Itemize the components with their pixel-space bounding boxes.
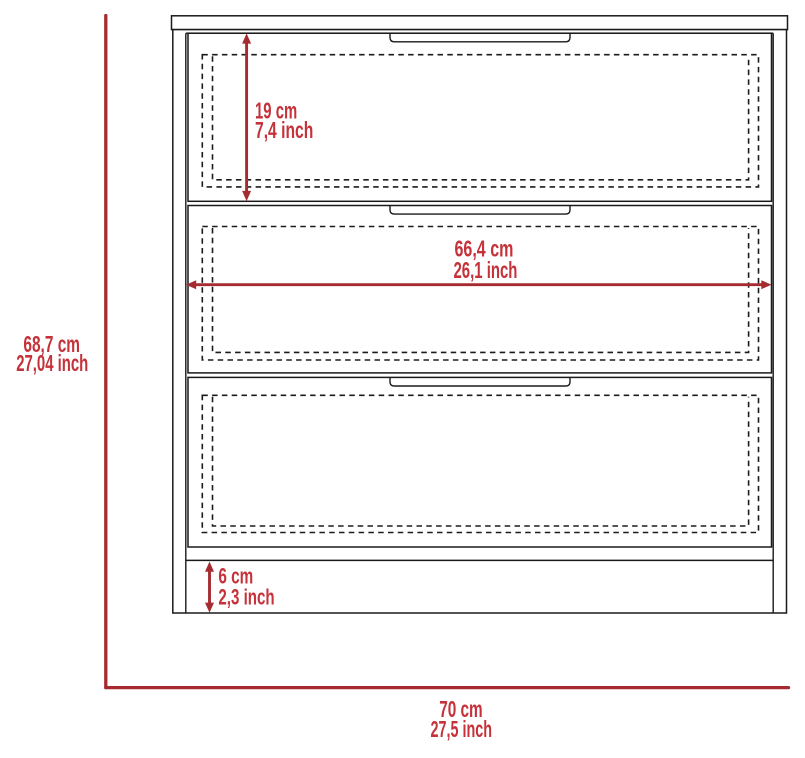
svg-text:27,04 inch: 27,04 inch — [16, 350, 88, 376]
svg-text:7,4 inch: 7,4 inch — [255, 117, 313, 143]
svg-text:2,3 inch: 2,3 inch — [218, 585, 274, 610]
svg-text:26,1 inch: 26,1 inch — [454, 257, 518, 283]
svg-text:27,5 inch: 27,5 inch — [431, 716, 493, 742]
